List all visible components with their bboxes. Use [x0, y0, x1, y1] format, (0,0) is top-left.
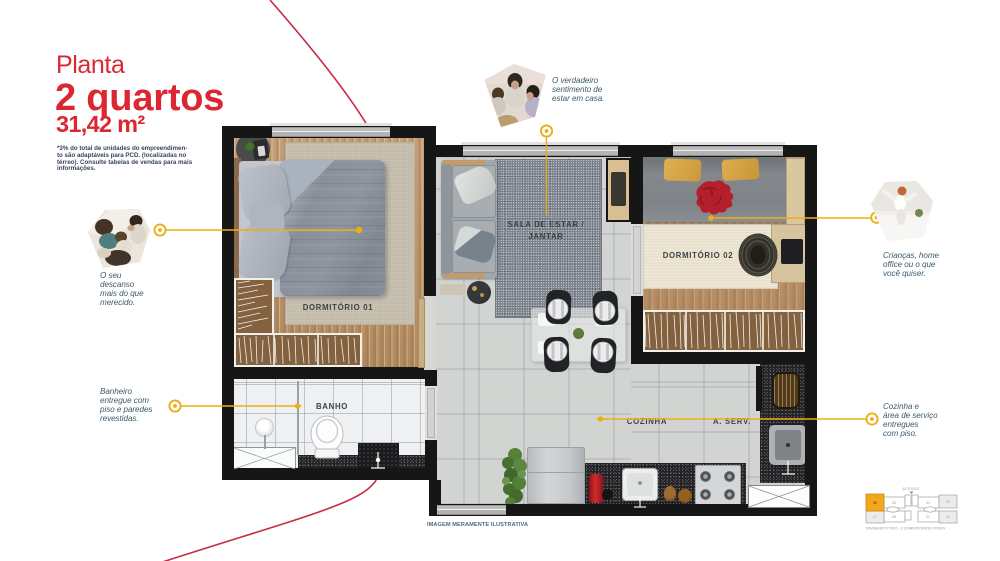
svg-text:08: 08 — [892, 515, 896, 519]
svg-text:01: 01 — [926, 515, 930, 519]
svg-text:06: 06 — [873, 501, 877, 505]
svg-text:03: 03 — [946, 500, 950, 504]
svg-text:PAVIMENTO TIPO - 2 DORMITÓRIOS: PAVIMENTO TIPO - 2 DORMITÓRIOS PONTA — [866, 526, 946, 531]
svg-text:07: 07 — [873, 515, 877, 519]
svg-text:05: 05 — [892, 501, 896, 505]
svg-text:ACESSO: ACESSO — [902, 487, 919, 491]
svg-text:04: 04 — [926, 501, 930, 505]
svg-text:02: 02 — [946, 515, 950, 519]
